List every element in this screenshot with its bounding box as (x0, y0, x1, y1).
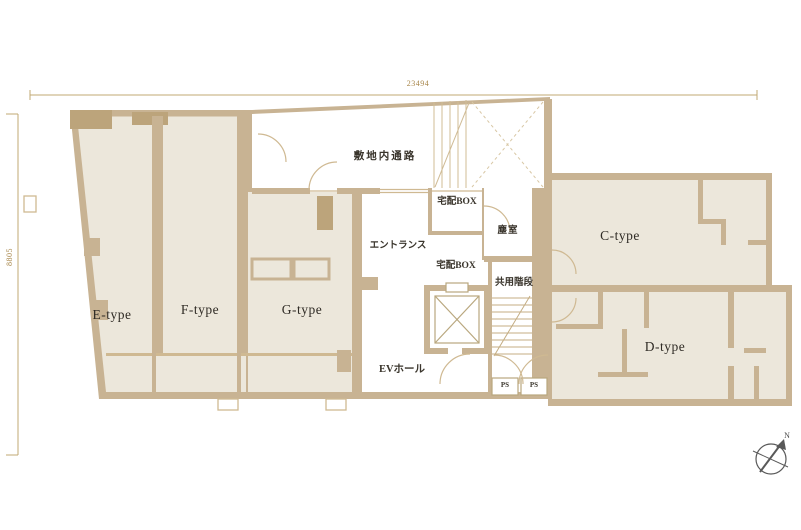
unit-label-c-type: C-type (590, 228, 650, 245)
delivery-box-room-label: 宅配BOX (437, 197, 477, 209)
delivery-box-label: 宅配BOX (428, 261, 484, 273)
unit-c-room (552, 180, 766, 285)
shared-staircase (492, 296, 532, 356)
ps-left-label: PS (493, 381, 517, 390)
unit-label-f-type: F-type (170, 302, 230, 319)
elevator (430, 283, 484, 348)
unit-g-room (248, 192, 352, 392)
compass-north-label: N (781, 431, 793, 441)
closets (252, 259, 329, 279)
floorplan-canvas: 23494 8805 敷地内通路 宅配BOX 塵室 エントランス 宅配BOX 共… (0, 0, 801, 530)
entrance-label: エントランス (362, 241, 434, 253)
unit-label-g-type: G-type (272, 302, 332, 319)
trash-room-label: 塵室 (490, 226, 526, 238)
compass-icon (753, 439, 788, 474)
unit-label-e-type: E-type (82, 307, 142, 324)
site-passage-area (252, 101, 544, 192)
ps-right-label: PS (522, 381, 546, 390)
dimension-left-label: 8805 (5, 242, 15, 272)
unit-label-d-type: D-type (635, 339, 695, 356)
shared-stairs-label: 共用階段 (488, 278, 540, 290)
ev-hall-label: EVホール (374, 363, 430, 376)
dimension-top-label: 23494 (394, 79, 442, 89)
site-passage-label: 敷地内通路 (340, 150, 430, 163)
